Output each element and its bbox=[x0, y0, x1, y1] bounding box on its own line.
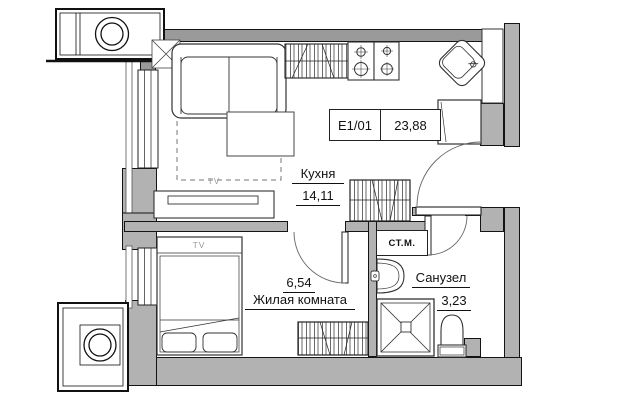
washing-machine-slot: СТ.М. bbox=[376, 230, 428, 256]
window-living bbox=[138, 248, 158, 305]
kitchen-area: 14,11 bbox=[296, 189, 340, 206]
shower-tray bbox=[377, 299, 434, 356]
pillow bbox=[203, 333, 237, 352]
window-sill-upper bbox=[126, 57, 132, 213]
vent-box-bottom-left bbox=[58, 303, 128, 391]
bathroom-name: Санузел bbox=[412, 271, 470, 288]
corner-shaft bbox=[482, 29, 503, 103]
washbasin bbox=[371, 259, 404, 293]
tv-label-living: TV bbox=[188, 241, 210, 251]
living-name: Жилая комната bbox=[245, 293, 355, 310]
kitchen-counter bbox=[285, 44, 348, 78]
living-area: 6,54 bbox=[283, 276, 315, 293]
toilet bbox=[438, 315, 466, 357]
stove bbox=[348, 42, 399, 80]
unit-code: E1/01 bbox=[330, 110, 381, 140]
window-kitchen bbox=[138, 70, 158, 168]
window-sill-lower bbox=[126, 246, 132, 308]
unit-info-box: E1/01 23,88 bbox=[329, 109, 441, 141]
bathroom-area: 3,23 bbox=[437, 294, 471, 311]
entrance-door bbox=[416, 142, 481, 215]
vent-box-top-left bbox=[46, 9, 168, 61]
sofa bbox=[172, 44, 286, 118]
tv-label-kitchen: TV bbox=[203, 177, 225, 187]
unit-total-area: 23,88 bbox=[381, 110, 440, 140]
bathroom-door bbox=[425, 216, 467, 255]
bed bbox=[157, 237, 242, 355]
coffee-table bbox=[227, 112, 294, 156]
pillow bbox=[162, 333, 196, 352]
fridge bbox=[438, 100, 481, 144]
floor-plan: E1/01 23,88 Кухня 14,11 6,54 Жилая комна… bbox=[0, 0, 640, 405]
kitchen-name: Кухня bbox=[292, 167, 344, 184]
kitchen-sink bbox=[437, 38, 488, 89]
wardrobe-kitchen bbox=[350, 180, 410, 221]
tv-stand bbox=[154, 191, 274, 218]
wardrobe-living bbox=[298, 322, 368, 355]
